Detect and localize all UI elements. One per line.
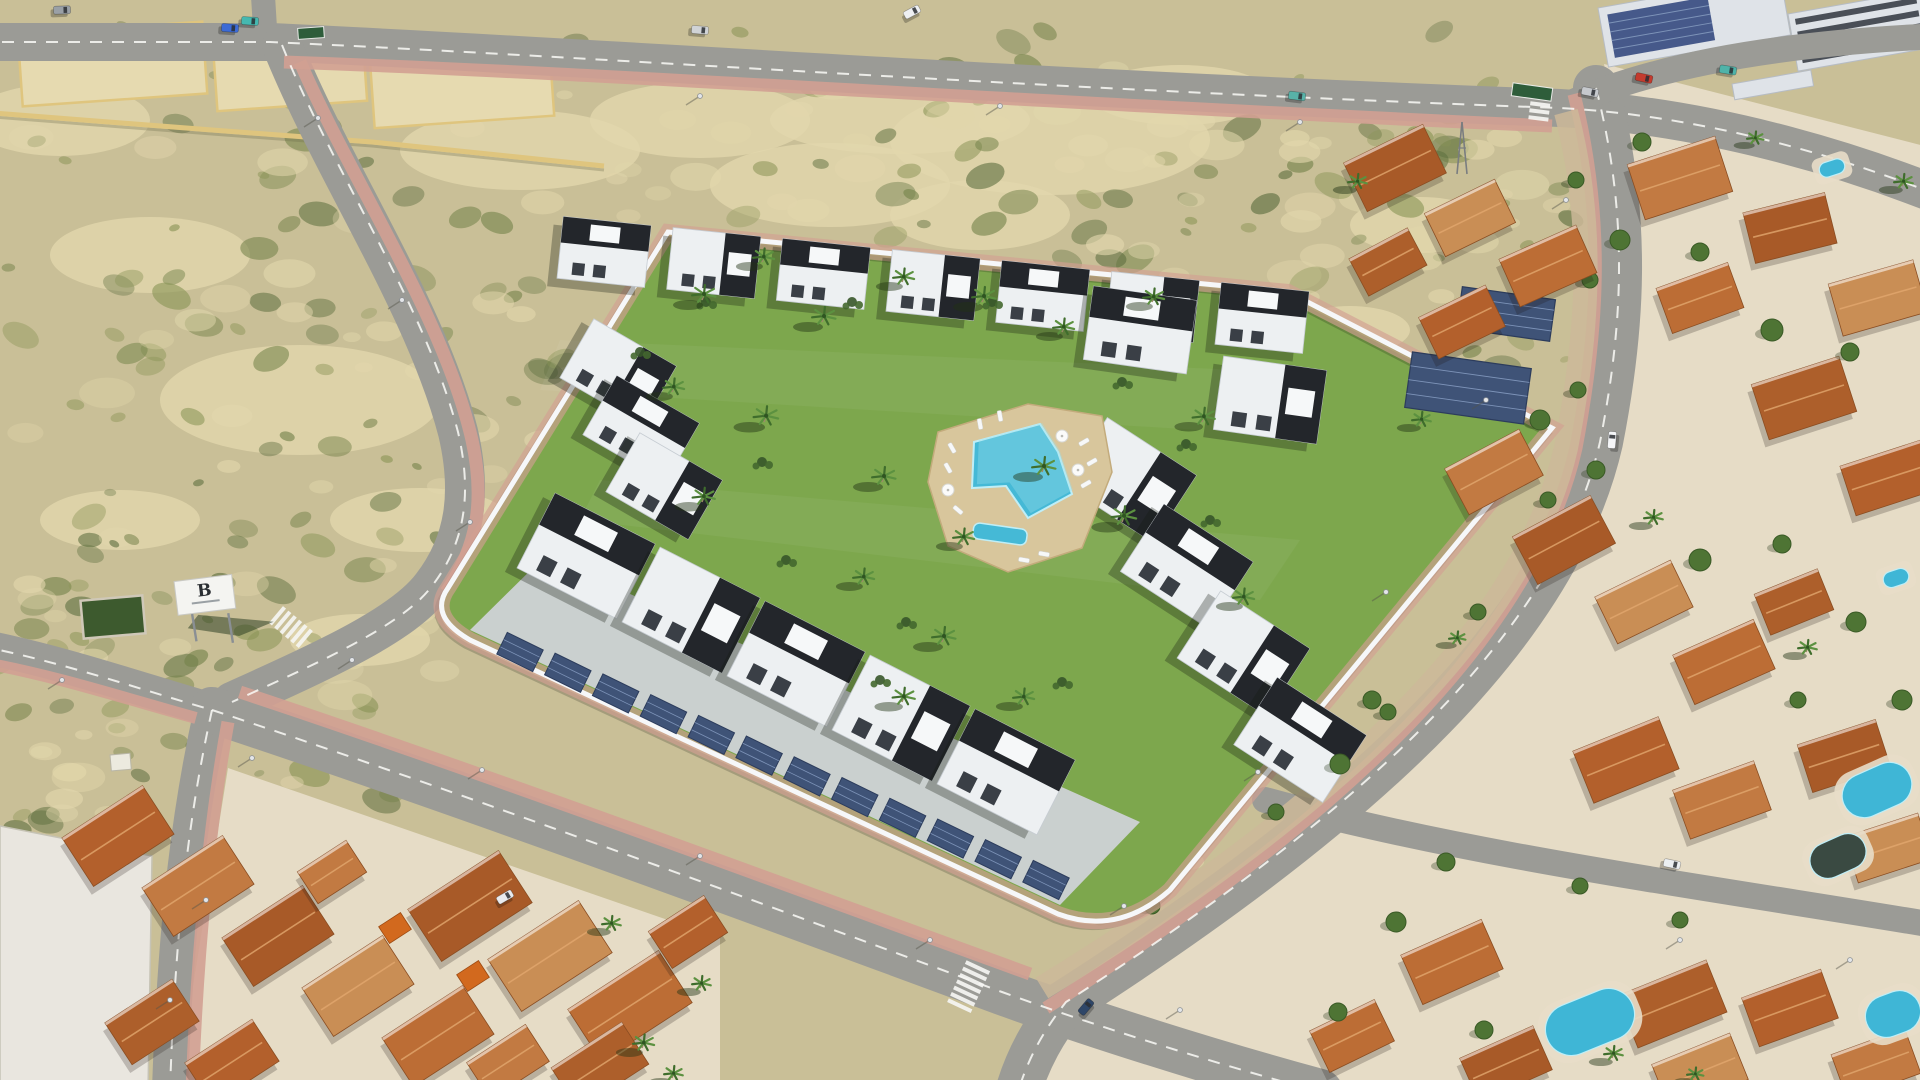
- street-lamp: [1122, 904, 1127, 909]
- window: [812, 287, 826, 301]
- window: [922, 298, 936, 312]
- townhouse-block: [766, 238, 870, 319]
- street-lamp: [204, 898, 209, 903]
- sand-trail: [106, 719, 139, 737]
- street-lamp: [468, 520, 473, 525]
- window: [1125, 345, 1141, 362]
- sand-trail: [30, 746, 52, 758]
- window: [791, 284, 805, 298]
- window: [901, 295, 915, 309]
- street-tree: [1380, 704, 1396, 720]
- garden-tree: [1691, 243, 1709, 261]
- garden-tree: [1386, 912, 1406, 932]
- sand-trail: [309, 480, 333, 493]
- car-windshield: [1298, 93, 1302, 99]
- sand-trail: [556, 90, 572, 99]
- street-lamp: [60, 678, 65, 683]
- sand-trail: [1055, 156, 1085, 173]
- street-lamp: [250, 756, 255, 761]
- sand-trail: [1086, 234, 1124, 255]
- garden-tree: [1761, 319, 1783, 341]
- sand-trail: [75, 730, 92, 740]
- garden-tree: [1633, 133, 1651, 151]
- sand-trail: [280, 776, 303, 789]
- sand-trail: [1189, 130, 1245, 161]
- window: [1251, 331, 1265, 345]
- utility-hut: [110, 753, 131, 771]
- window: [681, 273, 695, 287]
- townhouse-block: [1205, 282, 1309, 363]
- street-lamp: [1256, 770, 1261, 775]
- garden-tree: [1610, 230, 1630, 250]
- sand-trail: [616, 209, 640, 222]
- sand-trail: [212, 405, 253, 427]
- street-lamp: [1848, 958, 1853, 963]
- sand-patch: [50, 217, 250, 293]
- sand-trail: [257, 148, 308, 176]
- street-lamp: [1178, 1008, 1183, 1013]
- garden-tree: [1363, 691, 1381, 709]
- roof-terrace: [946, 274, 971, 299]
- street-lamp: [698, 854, 703, 859]
- window: [1255, 415, 1271, 432]
- street-lamp: [998, 104, 1003, 109]
- sand-trail: [1179, 193, 1205, 207]
- sand-trail: [785, 102, 813, 118]
- street-lamp: [480, 768, 485, 773]
- sand-trail: [355, 362, 373, 372]
- sand-trail: [175, 309, 216, 332]
- sand-trail: [1142, 155, 1165, 168]
- sand-trail: [978, 115, 1010, 133]
- car-windshield: [251, 18, 255, 24]
- street-lamp: [1484, 398, 1489, 403]
- sand-trail: [1281, 210, 1322, 233]
- sand-trail: [139, 330, 174, 349]
- sand-trail: [420, 660, 459, 682]
- sand-trail: [1279, 140, 1321, 163]
- car-windshield: [1609, 435, 1615, 439]
- sand-trail: [521, 191, 564, 215]
- sand-trail: [159, 638, 191, 656]
- street-lamp: [1384, 590, 1389, 595]
- sand-trail: [472, 291, 514, 314]
- townhouse-block: [547, 216, 651, 297]
- street-lamp: [316, 116, 321, 121]
- roof-terrace: [809, 246, 840, 265]
- garden-tree: [1790, 692, 1806, 708]
- street-tree: [1470, 604, 1486, 620]
- sand-trail: [670, 163, 721, 191]
- sand-patch: [890, 180, 1070, 250]
- sand-trail: [615, 162, 642, 177]
- street-lamp: [168, 998, 173, 1003]
- sand-trail: [659, 110, 696, 130]
- sand-trail: [645, 186, 671, 200]
- window: [572, 262, 586, 276]
- street-tree: [1268, 804, 1284, 820]
- sand-trail: [835, 155, 886, 183]
- sand-trail: [1428, 289, 1454, 303]
- sand-trail: [370, 558, 397, 573]
- street-lamp: [928, 938, 933, 943]
- garden-tree: [1329, 1003, 1347, 1021]
- townhouse-block: [1203, 355, 1326, 453]
- window: [593, 265, 607, 279]
- car-windshield: [231, 25, 235, 31]
- sand-trail: [200, 285, 250, 313]
- street-tree: [1540, 492, 1556, 508]
- sand-trail: [52, 763, 86, 782]
- car-windshield: [701, 27, 705, 33]
- street-lamp: [1298, 120, 1303, 125]
- street-lamp: [400, 298, 405, 303]
- walled-green-plot: [80, 595, 145, 638]
- window: [1231, 411, 1247, 428]
- sand-trail: [1068, 135, 1108, 157]
- garden-tree: [1689, 549, 1711, 571]
- street-lamp: [1564, 198, 1569, 203]
- sand-trail: [217, 460, 240, 473]
- road-sign: [298, 27, 325, 40]
- sand-trail: [7, 423, 43, 443]
- garden-tree: [1475, 1021, 1493, 1039]
- aerial-scene-canvas: B: [0, 0, 1920, 1080]
- townhouse-block: [1073, 285, 1196, 383]
- roof-terrace: [1247, 290, 1278, 309]
- sand-trail: [9, 125, 54, 150]
- sand-trail: [13, 576, 45, 594]
- street-lamp: [350, 658, 355, 663]
- aerial-photo: B: [0, 0, 1920, 1080]
- garden-tree: [1330, 754, 1350, 774]
- street-tree: [1570, 382, 1586, 398]
- window: [1031, 309, 1045, 323]
- street-lamp: [698, 94, 703, 99]
- sand-trail: [843, 133, 871, 148]
- sand-patch: [160, 345, 440, 455]
- sand-trail: [46, 804, 78, 822]
- roof-terrace: [1028, 268, 1059, 287]
- garden-tree: [1841, 343, 1859, 361]
- window: [1010, 306, 1024, 320]
- garden-tree: [1587, 461, 1605, 479]
- garden-tree: [1846, 612, 1866, 632]
- sand-trail: [711, 122, 752, 144]
- sand-trail: [134, 136, 176, 159]
- window: [1230, 328, 1244, 342]
- sand-trail: [263, 259, 315, 288]
- street-tree: [1568, 172, 1584, 188]
- sand-trail: [318, 680, 373, 710]
- car-windshield: [63, 7, 67, 13]
- street-lamp: [1678, 938, 1683, 943]
- sand-trail: [343, 332, 361, 342]
- garden-tree: [1572, 878, 1588, 894]
- garden-tree: [1773, 535, 1791, 553]
- billboard-letter: B: [196, 580, 213, 602]
- roof-terrace: [1285, 388, 1315, 418]
- sand-trail: [1128, 242, 1160, 259]
- garden-tree: [1437, 853, 1455, 871]
- window: [1101, 341, 1117, 358]
- garden-tree: [1530, 410, 1550, 430]
- garden-tree: [1672, 912, 1688, 928]
- sand-trail: [79, 378, 135, 409]
- garden-tree: [1892, 690, 1912, 710]
- sand-trail: [44, 610, 66, 622]
- sand-trail: [787, 199, 829, 222]
- roof-terrace: [589, 224, 620, 243]
- sand-trail: [276, 302, 312, 322]
